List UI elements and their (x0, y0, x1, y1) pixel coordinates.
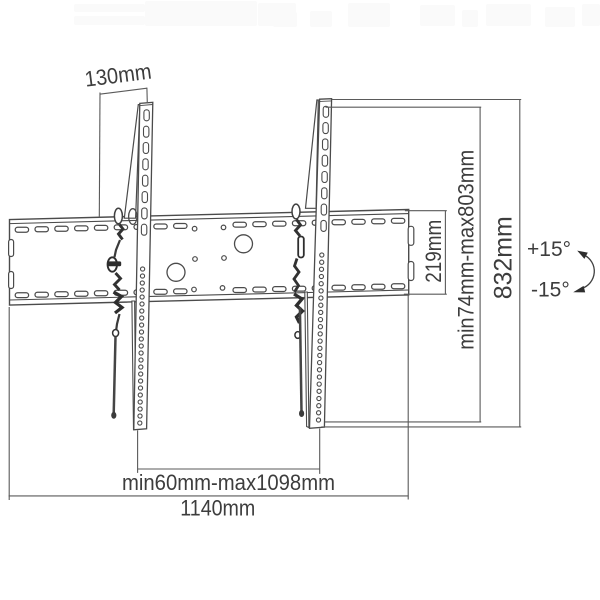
svg-text:832mm: 832mm (490, 216, 518, 299)
svg-text:1140mm: 1140mm (180, 496, 255, 521)
svg-text:min74mm-max803mm: min74mm-max803mm (453, 150, 478, 350)
svg-text:219mm: 219mm (421, 220, 446, 283)
svg-text:+15°: +15° (527, 238, 571, 261)
svg-text:130mm: 130mm (83, 59, 153, 92)
svg-text:min60mm-max1098mm: min60mm-max1098mm (122, 470, 335, 495)
svg-text:-15°: -15° (531, 279, 570, 302)
